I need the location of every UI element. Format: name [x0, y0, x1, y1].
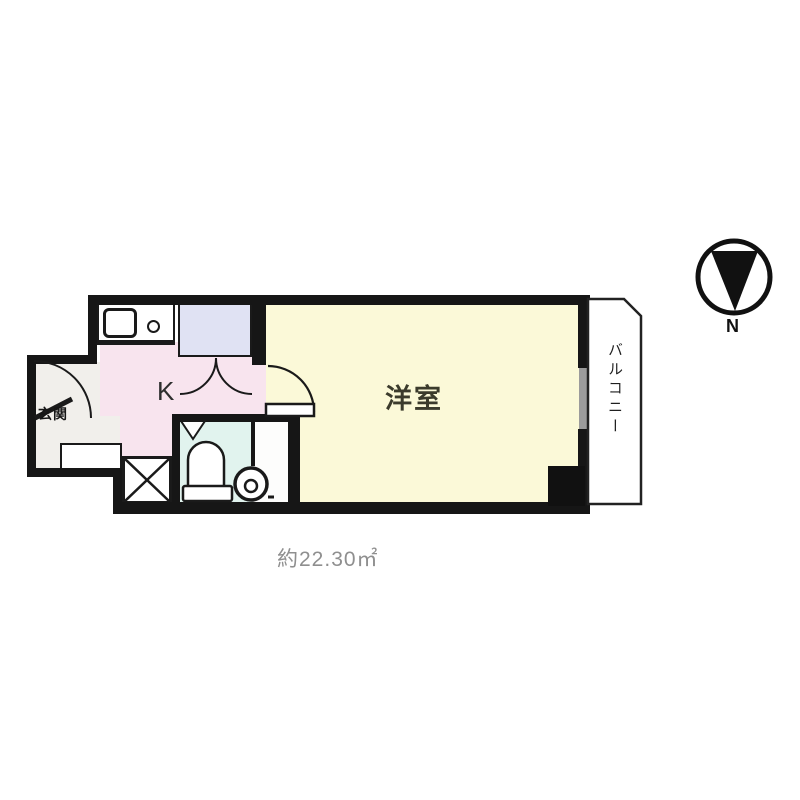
toilet-icon — [183, 442, 232, 501]
compass-icon — [698, 241, 770, 313]
entrance-label: 玄関 — [38, 404, 68, 424]
main-room-door — [266, 366, 314, 416]
main-room-label: 洋室 — [385, 377, 443, 416]
floor-area-label: 約22.30㎡ — [277, 543, 379, 573]
balcony-label: バルコニー — [604, 342, 625, 437]
washbasin-icon — [235, 468, 274, 500]
kitchen-label: K — [157, 376, 174, 407]
bath-corner-shelf — [181, 421, 205, 439]
closet-doors — [180, 358, 252, 394]
compass-north-label: N — [726, 316, 739, 337]
washing-machine-x — [125, 459, 169, 501]
floor-plan: 洋室 バルコニー 玄関 K N 約22.30㎡ — [0, 0, 800, 800]
